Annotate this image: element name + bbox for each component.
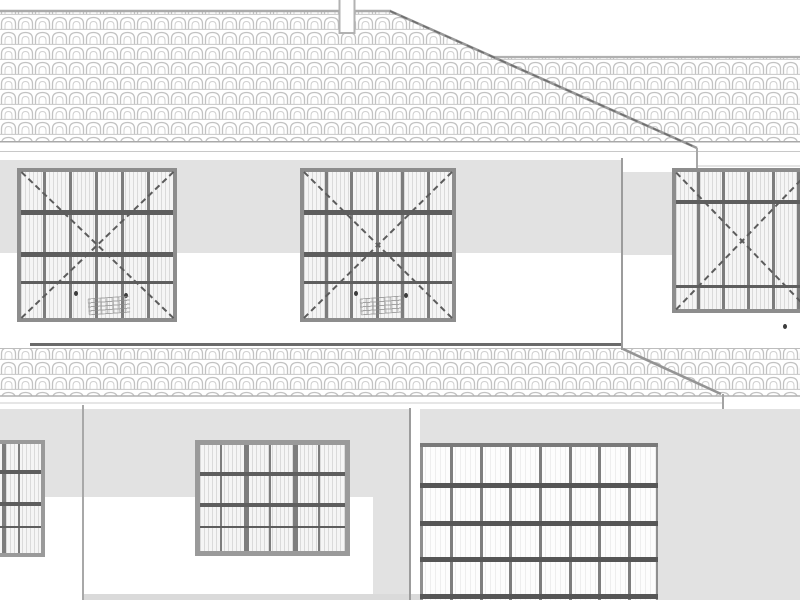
garage-door <box>420 443 658 600</box>
chimney <box>340 0 355 33</box>
window-transom-bar <box>0 470 41 474</box>
window-transom-bar <box>420 557 658 562</box>
garage-corner-line <box>409 408 411 600</box>
ground-wall-column <box>373 497 410 600</box>
window-mullion <box>293 445 298 551</box>
window-transom-bar <box>304 252 452 257</box>
window-transom-bar <box>21 281 173 284</box>
window-mullion <box>2 444 6 553</box>
window-transom-bar <box>420 443 658 447</box>
window-transom-bar <box>200 503 345 507</box>
main-roof-tiles <box>0 11 800 141</box>
window-transom-bar <box>420 521 658 526</box>
window-transom-bar <box>0 526 41 528</box>
window-mullion <box>269 445 271 551</box>
window-transom-bar <box>304 281 452 284</box>
lower-roof-tiles <box>0 348 800 396</box>
annotation-stamp <box>87 296 130 316</box>
window-mullion <box>220 445 222 551</box>
window-mullion <box>747 172 750 309</box>
upper-corner-line <box>621 158 623 350</box>
window-mullion <box>318 445 320 551</box>
window-transom-bar <box>420 483 658 488</box>
ground-window-left-partial <box>0 440 45 557</box>
window-transom-bar <box>200 472 345 476</box>
annotation-dot <box>404 293 408 298</box>
window-transom-bar <box>21 252 173 257</box>
window-transom-bar <box>420 594 658 599</box>
annotation-dot <box>74 291 78 296</box>
upper-window-right <box>672 168 800 313</box>
window-mullion <box>69 172 72 318</box>
ground-corner-line-left <box>82 405 84 600</box>
window-mullion <box>772 172 775 309</box>
window-mullion <box>18 444 20 553</box>
annotation-dot <box>354 291 358 296</box>
ground-window-middle <box>195 440 350 556</box>
window-transom-bar <box>200 526 345 528</box>
annotation-dot <box>783 324 787 329</box>
window-mullion <box>722 172 725 309</box>
window-transom-bar <box>0 502 41 506</box>
eave-fascia <box>0 141 800 160</box>
window-transom-bar <box>21 210 173 215</box>
window-mullion <box>244 445 249 551</box>
window-mullion <box>350 172 353 318</box>
window-transom-bar <box>304 210 452 215</box>
elevation-canvas <box>0 0 800 600</box>
annotation-stamp <box>359 296 402 316</box>
